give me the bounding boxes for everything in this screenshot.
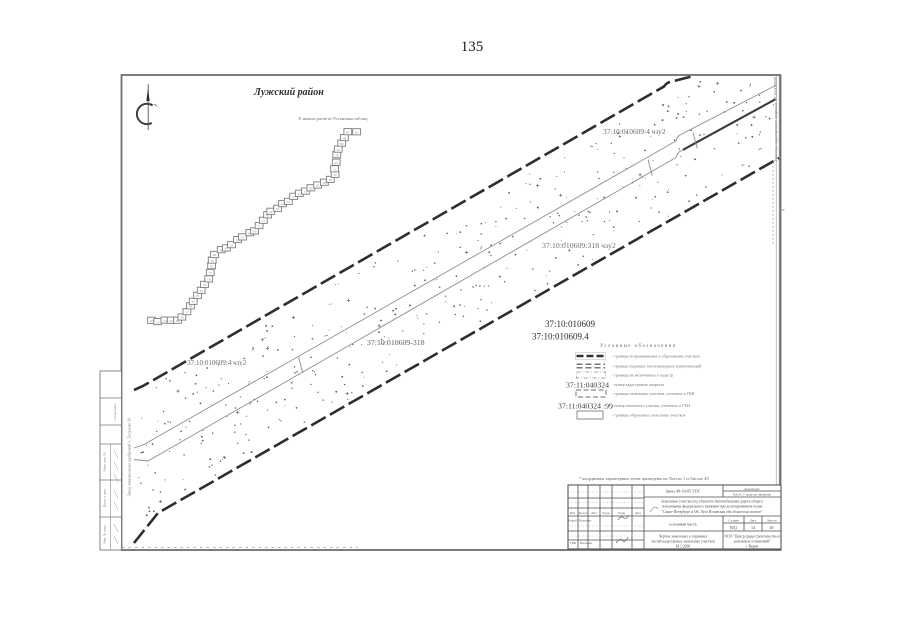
svg-text:37:10:010609:4 чзу2: 37:10:010609:4 чзу2	[187, 359, 247, 367]
svg-text:Взам. инв. №: Взам. инв. №	[103, 452, 107, 472]
svg-text:Лужский район: Лужский район	[253, 87, 324, 98]
svg-text:пользования федерального значе: пользования федерального значения при до…	[662, 505, 763, 509]
svg-text:63: 63	[323, 181, 327, 185]
svg-text:25: 25	[230, 243, 234, 247]
svg-text:65: 65	[316, 184, 320, 188]
svg-text:37:10:010609-318: 37:10:010609-318	[367, 338, 425, 347]
svg-text:55: 55	[287, 200, 291, 204]
svg-text:37:11:040324 :99: 37:11:040324 :99	[558, 402, 613, 411]
svg-text:ЧАЭС Т кадастр. инженер: ЧАЭС Т кадастр. инженер	[733, 493, 771, 497]
svg-text:50: 50	[253, 230, 257, 234]
svg-text:73: 73	[209, 271, 213, 275]
svg-text:* координаты характерных точек: * координаты характерных точек приведены…	[579, 476, 709, 481]
svg-text:33: 33	[200, 289, 204, 293]
svg-text:Согласовано: Согласовано	[113, 403, 117, 420]
svg-text:37:10:010609.4: 37:10:010609.4	[532, 332, 589, 342]
svg-text:частей кадастровых земельных у: частей кадастровых земельных участков	[651, 540, 715, 544]
svg-text:89: 89	[340, 142, 344, 146]
svg-text:Заказ 49-10-05 ГПС: Заказ 49-10-05 ГПС	[665, 489, 700, 494]
svg-text:ПД1: ПД1	[730, 525, 738, 530]
svg-text:67: 67	[276, 207, 280, 211]
svg-text:М 1:2000: М 1:2000	[676, 545, 691, 549]
svg-text:Дата: Дата	[635, 511, 642, 515]
svg-text:Земельные участки под объектом: Земельные участки под объектом Автомобил…	[661, 500, 763, 504]
svg-text:Условные обозначения: Условные обозначения	[600, 344, 677, 349]
svg-text:135: 135	[461, 39, 484, 55]
svg-text:Стадия: Стадия	[728, 519, 739, 523]
svg-text:37:10:010609:4 чзу2: 37:10:010609:4 чзу2	[603, 127, 666, 136]
svg-text:22: 22	[156, 320, 160, 324]
svg-text:15: 15	[241, 236, 245, 240]
svg-text:34: 34	[203, 283, 207, 287]
svg-text:Х начала расчета-Установка таб: Х начала расчета-Установка таблиц	[298, 116, 368, 121]
svg-text:"Санкт-Петербург и ОБ. Луга Пс: "Санкт-Петербург и ОБ. Луга Псковская об…	[662, 510, 763, 514]
svg-text:Граница кадастрового квартала: Граница кадастрового квартала 37:10:0106…	[773, 77, 778, 161]
svg-text:- границы образуемых земельных: - границы образуемых земельных участков	[612, 413, 685, 418]
svg-text:93: 93	[150, 319, 154, 323]
svg-text:Васильев: Васильев	[580, 541, 592, 545]
svg-text:61: 61	[355, 131, 359, 135]
svg-text:37:11:040324: 37:11:040324	[566, 381, 609, 390]
svg-text:Чертеж земельных и охранных: Чертеж земельных и охранных	[659, 535, 708, 539]
svg-text:37:10:010609:318 чзу2: 37:10:010609:318 чзу2	[542, 241, 616, 250]
svg-text:- граница охранных зон инженер: - граница охранных зон инженерных коммун…	[612, 364, 702, 369]
svg-text:26: 26	[337, 148, 341, 152]
svg-text:- границы не включенных в када: - границы не включенных в кадастр	[612, 373, 673, 378]
svg-text:земельных отношений": земельных отношений"	[734, 540, 771, 544]
svg-text:Кол.уч: Кол.уч	[579, 511, 588, 515]
svg-text:43: 43	[335, 161, 339, 165]
svg-text:основная часть: основная часть	[669, 522, 697, 527]
svg-text:Листов: Листов	[766, 519, 777, 523]
svg-text:Изм: Изм	[570, 511, 575, 515]
svg-text:Лист: Лист	[591, 511, 598, 515]
svg-text:41: 41	[298, 192, 302, 196]
svg-text:11: 11	[333, 168, 337, 172]
svg-text:78: 78	[335, 153, 339, 157]
svg-text:38: 38	[180, 316, 184, 320]
svg-text:Подп.: Подп.	[618, 511, 626, 515]
svg-text:Морозова: Морозова	[579, 519, 592, 523]
svg-text:17: 17	[185, 310, 189, 314]
svg-text:73: 73	[257, 224, 261, 228]
svg-text:80: 80	[309, 187, 313, 191]
svg-text:18: 18	[207, 278, 211, 282]
svg-text:Разраб.: Разраб.	[568, 519, 578, 523]
svg-text:Завод минеральных удобрений с.: Завод минеральных удобрений с. Лесуново …	[127, 418, 132, 497]
svg-text:Арендодат.: Арендодат.	[744, 487, 760, 491]
svg-text:50: 50	[210, 264, 214, 268]
svg-text:83: 83	[196, 294, 200, 298]
svg-text:38: 38	[189, 305, 193, 309]
svg-text:56: 56	[211, 259, 215, 263]
svg-text:58: 58	[329, 178, 333, 182]
svg-text:- номер кадастрового квартала: - номер кадастрового квартала	[612, 382, 664, 387]
svg-text:Лист: Лист	[750, 519, 757, 523]
svg-text:ООО "Центр градостроительства: ООО "Центр градостроительства и	[724, 535, 779, 539]
svg-text:49: 49	[770, 525, 774, 530]
svg-text:Инв. № подл.: Инв. № подл.	[103, 524, 107, 543]
svg-text:47: 47	[192, 300, 196, 304]
svg-text:49: 49	[269, 210, 273, 214]
svg-text:21: 21	[262, 219, 266, 223]
svg-text:63: 63	[170, 319, 174, 323]
svg-text:97: 97	[346, 130, 350, 134]
svg-text:37:10:010609: 37:10:010609	[545, 319, 596, 329]
svg-text:- границы испрашиваемых к обра: - границы испрашиваемых к образованию уч…	[612, 354, 700, 359]
svg-text:14: 14	[751, 525, 755, 530]
svg-text:ГИП: ГИП	[570, 541, 577, 545]
svg-text:74: 74	[163, 319, 167, 323]
svg-text:г. Верон: г. Верон	[746, 545, 759, 549]
svg-text:№док: №док	[602, 511, 610, 515]
svg-text:Подп. и дата: Подп. и дата	[103, 488, 107, 507]
svg-text:32: 32	[333, 173, 337, 177]
svg-text:68: 68	[343, 136, 347, 140]
svg-text:99: 99	[213, 253, 217, 257]
